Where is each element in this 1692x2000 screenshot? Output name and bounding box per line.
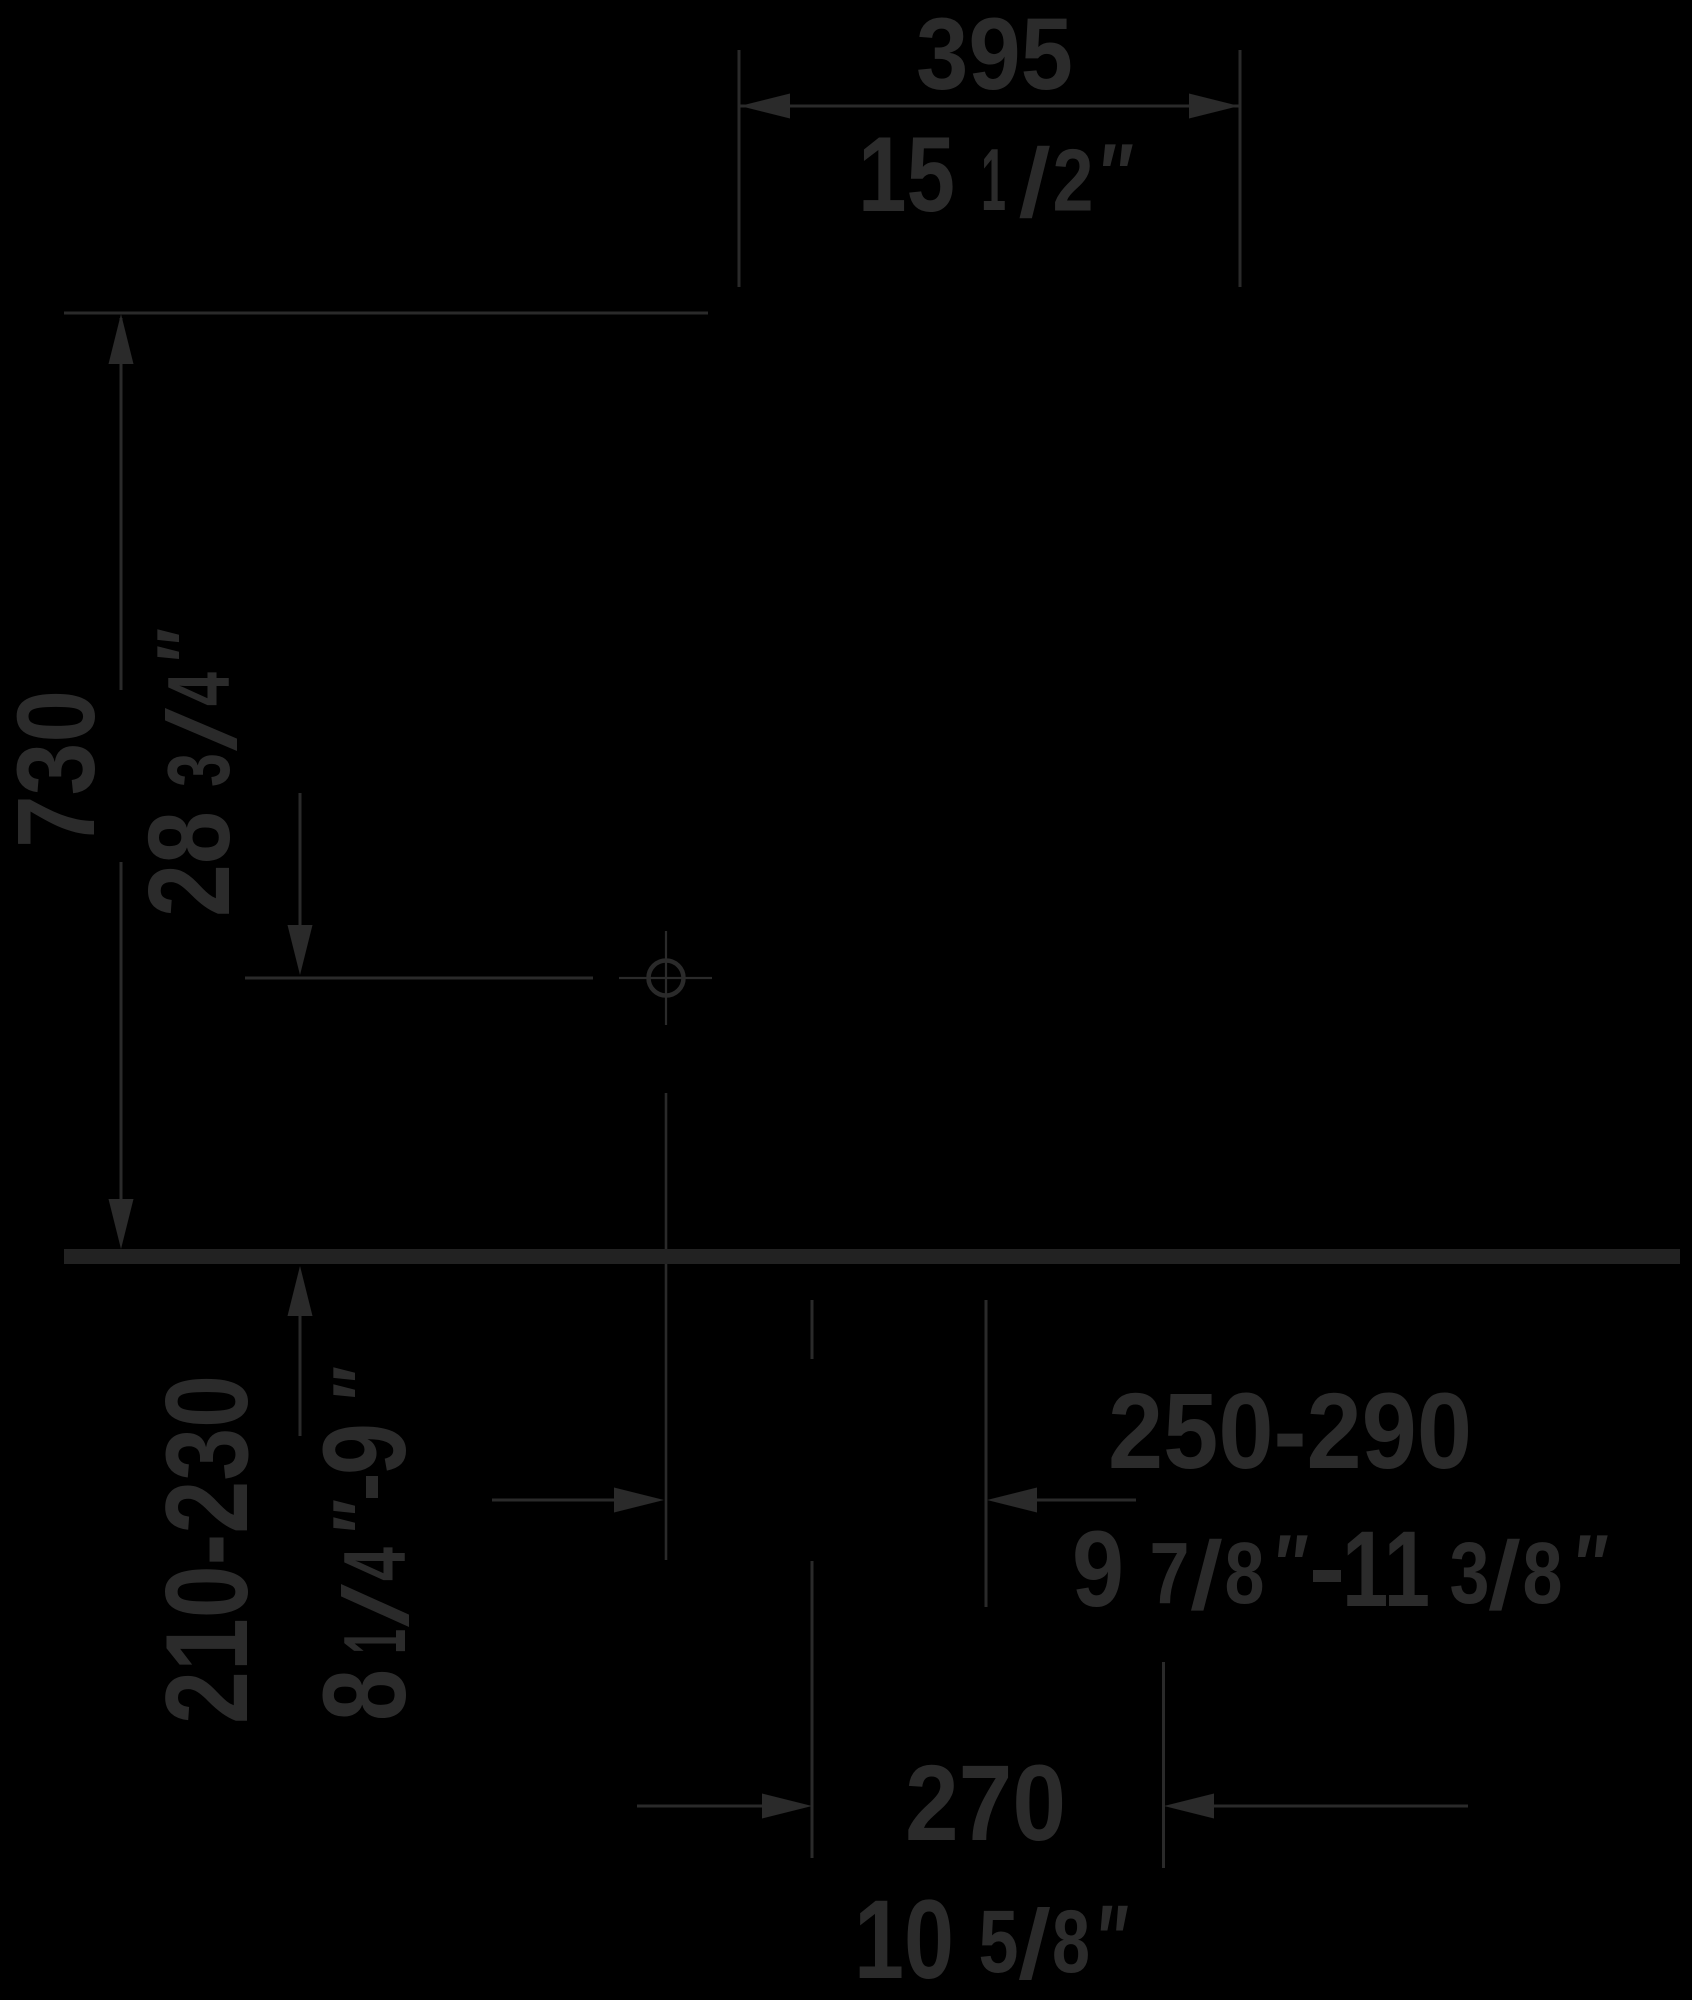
svg-text:3: 3 (149, 753, 248, 787)
svg-text:250-290: 250-290 (1108, 1370, 1472, 1491)
svg-text:28: 28 (124, 811, 254, 917)
svg-text:8: 8 (1052, 1891, 1090, 1991)
svg-text:1: 1 (325, 1629, 424, 1654)
svg-text:″: ″ (316, 1366, 411, 1400)
svg-text:″: ″ (1575, 1518, 1609, 1613)
svg-text:2: 2 (1053, 131, 1094, 230)
svg-text:10: 10 (854, 1877, 954, 2000)
svg-text:730: 730 (0, 690, 118, 848)
svg-text:9: 9 (299, 1423, 431, 1475)
svg-text:″: ″ (1100, 127, 1134, 222)
svg-text:11: 11 (1342, 1508, 1430, 1629)
svg-text:7: 7 (1150, 1525, 1190, 1622)
svg-text:9: 9 (1072, 1508, 1124, 1629)
svg-text:4: 4 (325, 1547, 424, 1581)
svg-text:15: 15 (858, 114, 955, 234)
svg-text:270: 270 (905, 1742, 1066, 1863)
svg-text:210-230: 210-230 (141, 1375, 272, 1724)
svg-text:8: 8 (299, 1669, 431, 1721)
svg-text:″: ″ (140, 628, 235, 662)
svg-text:5: 5 (979, 1891, 1019, 1991)
svg-text:″: ″ (1098, 1885, 1129, 1994)
svg-text:″: ″ (316, 1499, 411, 1533)
svg-text:395: 395 (916, 0, 1073, 111)
svg-text:1: 1 (981, 130, 1006, 229)
svg-text:8: 8 (1225, 1525, 1265, 1622)
svg-text:8: 8 (1523, 1525, 1563, 1622)
svg-text:4: 4 (149, 672, 248, 706)
svg-text:3: 3 (1450, 1525, 1490, 1622)
svg-text:″: ″ (1275, 1518, 1309, 1613)
